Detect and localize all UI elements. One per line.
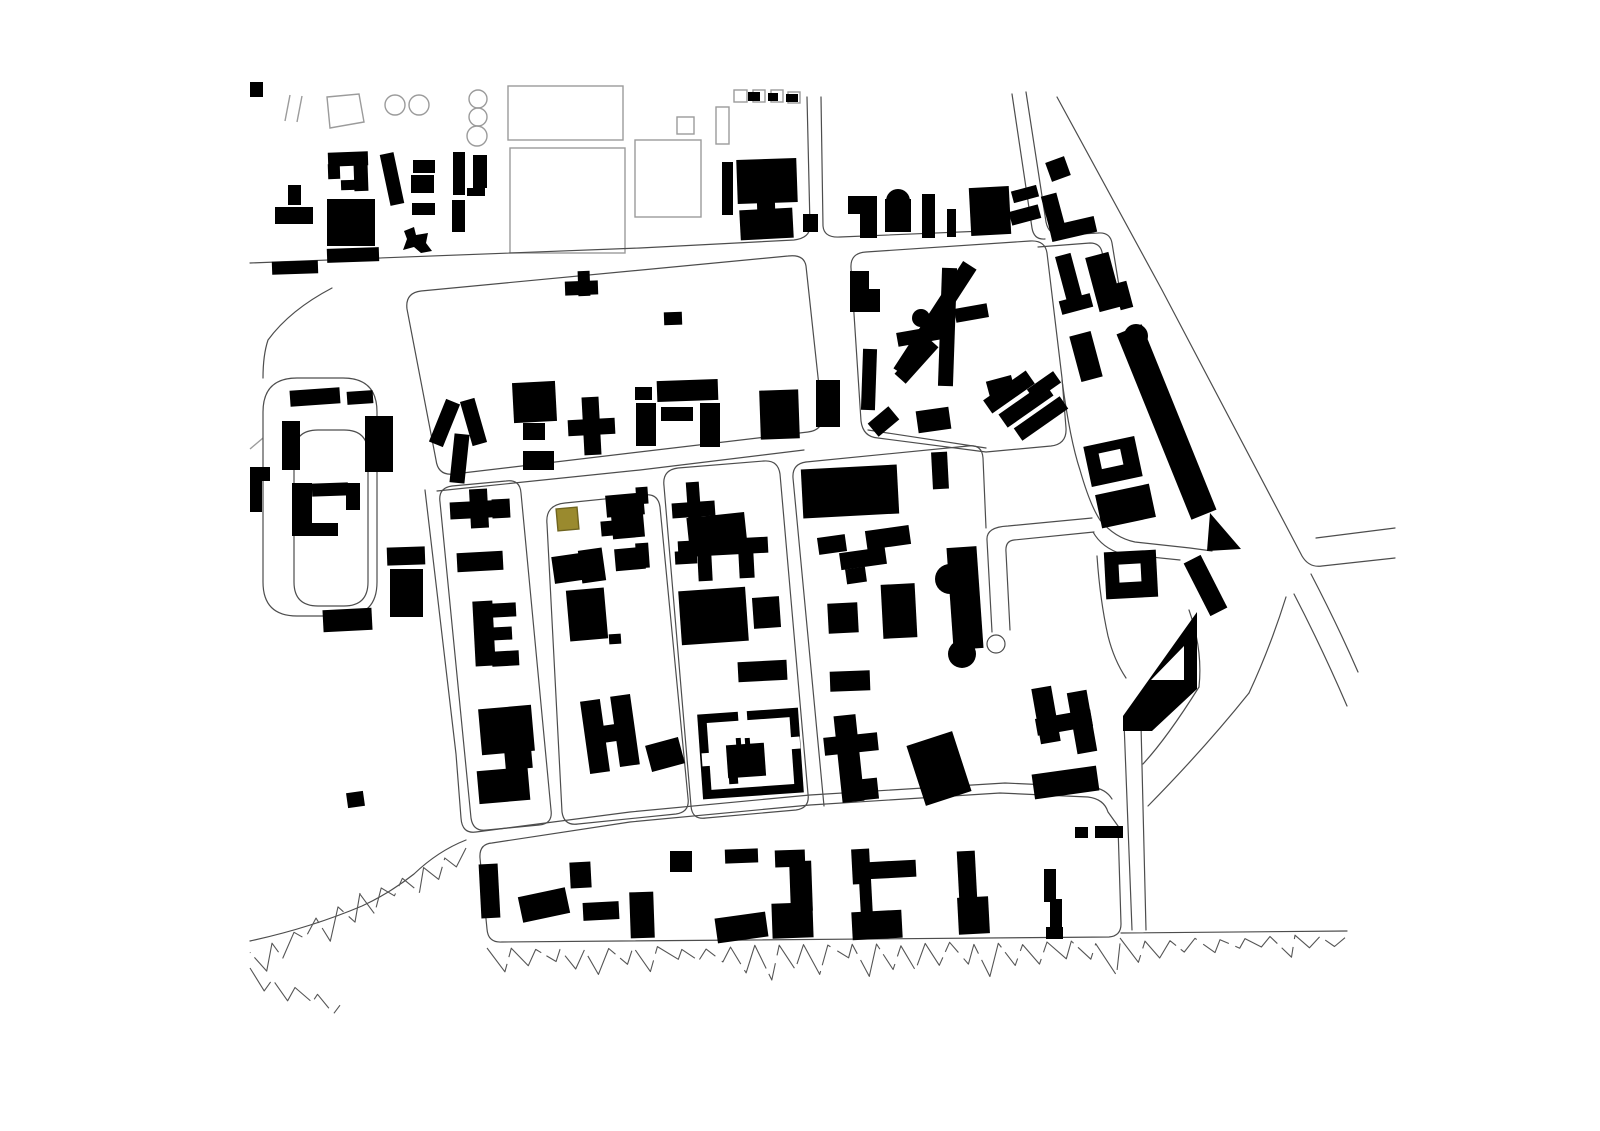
building-footprint [341, 180, 358, 191]
courtyard-void [1119, 563, 1142, 582]
building-footprint [881, 583, 918, 639]
building-footprint [697, 554, 712, 582]
building-footprint [830, 670, 871, 691]
building-footprint [816, 380, 840, 427]
building-footprint [272, 260, 318, 275]
building-footprint [609, 634, 622, 645]
building-footprint [523, 423, 545, 440]
building-footprint [288, 185, 301, 205]
building-footprint [1124, 324, 1148, 348]
building-footprint [365, 416, 393, 472]
building-footprint [1095, 826, 1123, 838]
building-footprint [600, 520, 614, 536]
building-footprint [566, 587, 608, 641]
building-footprint [327, 199, 375, 246]
building-footprint [845, 567, 867, 585]
building-footprint [312, 482, 348, 496]
building-footprint [725, 848, 758, 863]
building-footprint [886, 189, 910, 213]
building-footprint [250, 82, 263, 97]
building-footprint [635, 387, 652, 400]
building-footprint [469, 489, 489, 529]
building-footprint [452, 200, 465, 232]
building-footprint [957, 896, 990, 935]
building-footprint [1075, 827, 1088, 838]
building-footprint [292, 483, 312, 536]
building-footprint [578, 547, 606, 583]
building-footprint [739, 208, 793, 241]
building-footprint [492, 650, 520, 666]
building-footprint [916, 407, 952, 433]
building-footprint [670, 851, 692, 872]
building-footprint [664, 312, 682, 326]
building-footprint [583, 901, 620, 921]
building-footprint [629, 892, 655, 939]
building-footprint [411, 175, 434, 193]
culdesac-circle [987, 635, 1005, 653]
building-footprint [947, 209, 956, 237]
building-footprint [453, 152, 465, 195]
building-footprint [479, 864, 501, 919]
building-footprint [851, 910, 902, 941]
building-footprint [759, 389, 800, 439]
courtyard-void [702, 753, 714, 767]
building-footprint [457, 551, 504, 572]
building-footprint [866, 289, 880, 312]
building-footprint [568, 418, 616, 436]
building-footprint [931, 452, 949, 490]
map-stage [0, 0, 1600, 1131]
building-footprint [597, 724, 621, 744]
building-footprint [492, 499, 511, 519]
building-footprint [635, 543, 650, 569]
building-footprint [866, 860, 917, 880]
building-footprint [569, 861, 591, 888]
building-footprint [347, 390, 374, 405]
building-footprint [738, 552, 754, 579]
building-footprint [860, 214, 877, 238]
building-footprint [282, 421, 300, 470]
building-footprint [912, 309, 930, 327]
city-map [0, 0, 1600, 1131]
building-footprint [275, 207, 313, 224]
building-footprint [328, 164, 341, 179]
map-background [0, 0, 1600, 1131]
building-footprint [492, 626, 513, 640]
building-footprint [1044, 869, 1056, 902]
building-footprint [757, 199, 775, 211]
building-footprint [969, 186, 1011, 236]
building-footprint [768, 93, 778, 101]
building-footprint [803, 214, 818, 232]
building-footprint [726, 743, 766, 779]
building-footprint [523, 451, 554, 470]
building-footprint [748, 92, 760, 101]
building-footprint [661, 407, 693, 421]
building-footprint [387, 546, 426, 565]
building-footprint [827, 602, 859, 634]
building-footprint [477, 767, 531, 804]
building-footprint [492, 602, 517, 617]
building-footprint [729, 775, 739, 785]
building-footprint [390, 569, 423, 617]
building-footprint [745, 738, 751, 746]
building-footprint [771, 902, 813, 938]
building-footprint [412, 203, 435, 215]
building-footprint [786, 94, 798, 102]
building-footprint [700, 403, 720, 447]
building-footprint [413, 160, 435, 173]
highlighted-site-building [556, 507, 579, 531]
building-footprint [312, 523, 338, 536]
building-footprint [935, 564, 965, 594]
courtyard-void [787, 737, 801, 750]
building-footprint [250, 481, 262, 512]
building-footprint [1046, 927, 1063, 939]
building-footprint [478, 705, 535, 755]
building-footprint [473, 155, 487, 188]
building-footprint [948, 640, 976, 668]
courtyard-void [738, 708, 748, 723]
building-footprint [957, 851, 978, 901]
building-footprint [736, 738, 742, 746]
building-footprint [250, 467, 270, 481]
building-footprint [722, 162, 733, 215]
building-footprint [346, 791, 365, 808]
building-footprint [551, 553, 582, 584]
building-footprint [611, 513, 645, 540]
building-footprint [657, 379, 719, 402]
building-footprint [738, 660, 788, 683]
building-footprint [636, 403, 656, 446]
building-footprint [467, 188, 485, 196]
building-footprint [578, 271, 591, 296]
building-footprint [322, 608, 372, 633]
building-footprint [346, 483, 360, 510]
building-footprint [752, 596, 781, 629]
building-footprint [675, 550, 698, 564]
building-footprint [801, 465, 899, 519]
building-footprint [736, 158, 797, 204]
building-footprint [327, 247, 379, 263]
building-footprint [635, 487, 648, 505]
building-footprint [512, 381, 557, 423]
building-footprint [678, 587, 749, 646]
building-footprint [861, 349, 877, 410]
building-footprint [922, 194, 935, 238]
building-footprint [504, 749, 533, 770]
building-footprint [848, 196, 877, 214]
building-footprint [849, 778, 879, 802]
